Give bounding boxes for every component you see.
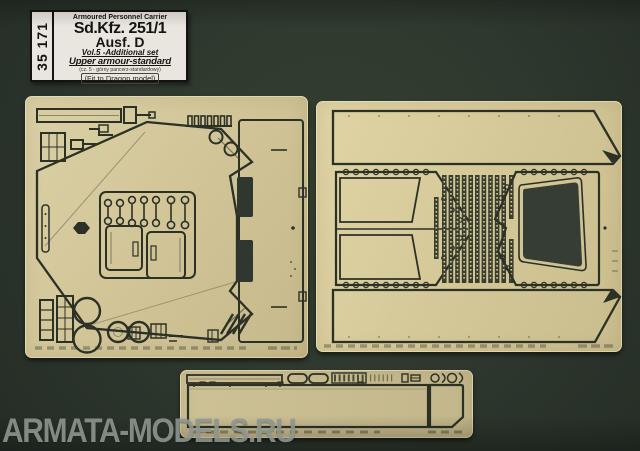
bottom-strip-part — [333, 290, 620, 342]
fret-right-etching — [316, 101, 622, 352]
vision-port-cutout — [237, 240, 253, 282]
product-label: 35 171 Armoured Personnel Carrier Sd.Kfz… — [30, 10, 188, 82]
fret-left-upper-hull — [25, 96, 308, 358]
label-fit-note: (Fit to Dragon model) — [81, 73, 160, 84]
top-strip-part — [333, 111, 620, 164]
product-photo: 35 171 Armoured Personnel Carrier Sd.Kfz… — [0, 0, 640, 451]
catalog-number-column: 35 171 — [32, 12, 54, 80]
small-parts-bottom-left — [40, 296, 183, 353]
rivet-strip-columns — [434, 175, 514, 283]
label-text-block: Armoured Personnel Carrier Sd.Kfz. 251/1… — [54, 12, 186, 80]
catalog-number: 35 171 — [34, 22, 50, 71]
label-set-name-alt: (cz. 5 - górny pancerz-standardowy) — [79, 67, 161, 72]
label-set-name: Upper armour-standard — [69, 57, 171, 67]
comb-strip — [186, 116, 232, 126]
tool-tray — [100, 192, 195, 278]
engine-opening-cutout — [523, 182, 582, 266]
fret-right-engine-deck — [316, 101, 622, 352]
label-variant: Ausf. D — [96, 36, 145, 49]
site-watermark: ARMATA-MODELS.RU — [2, 412, 296, 451]
small-parts-top-left — [37, 107, 155, 161]
fret-left-etching — [25, 96, 308, 358]
vision-port-cutout — [237, 177, 253, 217]
hex-hole — [73, 222, 90, 234]
